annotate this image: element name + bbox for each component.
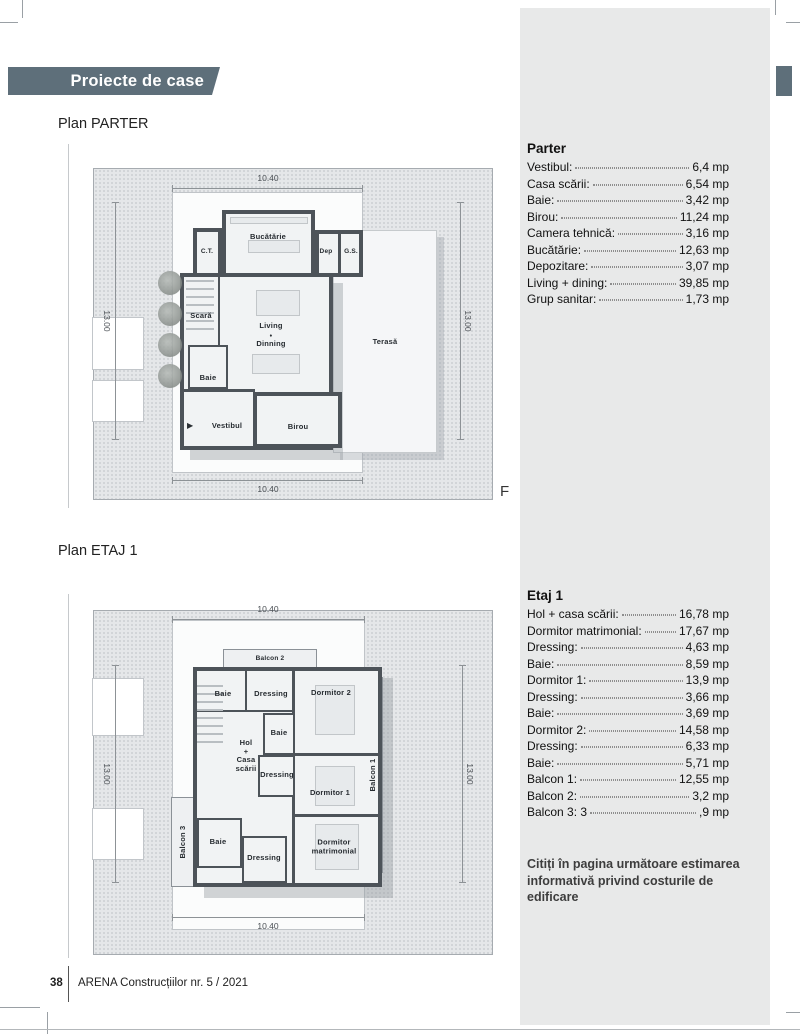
room-label-hol: Hol + Casa scării [236,739,257,773]
room-area: 6,4 mp [692,160,729,174]
room-label-vestibul: Vestibul [212,422,242,431]
room-area: 14,58 mp [679,723,729,737]
entrance-arrow-icon: ▶ [187,421,193,430]
room-label-dormitor1: Dormitor 1 [310,789,350,798]
dot-leader [557,714,682,715]
room-area: 4,63 mp [686,640,729,654]
partition-wall [338,232,341,275]
room-label-dormitor2: Dormitor 2 [311,689,351,698]
list-item: Baie: 5,71 mp [527,756,729,773]
dimension-line-right [462,665,463,883]
partition-wall [184,389,255,392]
dot-leader [599,300,682,301]
drawing-edge [68,144,69,508]
room-label-dressing-mid: Dressing [260,771,294,780]
drawing-edge [68,594,69,958]
crop-mark [786,22,800,23]
room-name: Baie: [527,706,554,720]
crop-mark [47,1012,48,1034]
dot-leader [557,201,682,202]
dimension-line-bottom [172,480,363,481]
room-label-dressing-top: Dressing [254,690,288,699]
room-area: 1,73 mp [686,292,729,306]
room-area: 6,54 mp [686,177,729,191]
list-item: Casa scării: 6,54 mp [527,177,729,194]
list-item: Vestibul: 6,4 mp [527,160,729,177]
dot-leader [575,168,689,169]
room-area: 3,16 mp [686,226,729,240]
list-item: Bucătărie: 12,63 mp [527,243,729,260]
dimension-line-left [115,202,116,440]
room-area: 12,63 mp [679,243,729,257]
list-item: Dormitor matrimonial: 17,67 mp [527,624,729,641]
room-area: 3,42 mp [686,193,729,207]
crop-mark [22,0,23,18]
room-area: 13,9 mp [686,673,729,687]
room-label-dressing-bottom: Dressing [247,854,281,863]
tree-icon [158,364,182,388]
dot-leader [584,250,676,251]
etaj-area-list: Etaj 1 Hol + casa scării: 16,78 mp Dormi… [527,588,729,822]
list-item: Baie: 3,69 mp [527,706,729,723]
room-name: Vestibul: [527,160,572,174]
bottom-rule [0,1029,800,1030]
dot-leader [561,217,676,218]
list-item: Dormitor 1: 13,9 mp [527,673,729,690]
crop-mark [0,1007,40,1008]
room-label-ct: C.T. [201,248,213,257]
room-name: Camera tehnică: [527,226,615,240]
room-label-balcon3: Balcon 3 [179,826,188,859]
list-item: Balcon 2: 3,2 mp [527,789,729,806]
dot-leader [580,780,676,781]
list-item: Dressing: 6,33 mp [527,739,729,756]
list-item: Camera tehnică: 3,16 mp [527,226,729,243]
room-label-balcon1: Balcon 1 [369,759,378,792]
dot-leader [589,681,682,682]
room-name: Grup sanitar: [527,292,596,306]
room-name: Depozitare: [527,259,588,273]
magazine-page: Proiecte de case Plan PARTER Plan ETAJ 1 [0,0,800,1034]
room-area: ,9 mp [699,805,729,819]
driveway [92,380,144,422]
room-area: 6,33 mp [686,739,729,753]
dot-leader [591,267,682,268]
dot-leader [580,796,689,797]
dimension-label: 13.00 [102,763,112,784]
dot-leader [645,631,676,632]
list-items: Hol + casa scării: 16,78 mp Dormitor mat… [527,607,729,822]
partition-wall [295,814,379,817]
list-item: Balcon 3: 3 ,9 mp [527,805,729,822]
room-area: 3,66 mp [686,690,729,704]
room-area: 12,55 mp [679,772,729,786]
list-item: Baie: 3,42 mp [527,193,729,210]
driveway [92,317,144,370]
dimension-line-right [460,202,461,440]
room-label-baie: Baie [200,374,217,383]
list-item: Dressing: 4,63 mp [527,640,729,657]
dining-table [256,290,300,316]
list-items: Vestibul: 6,4 mp Casa scării: 6,54 mp Ba… [527,160,729,309]
room-area: 39,85 mp [679,276,729,290]
list-item: Grup sanitar: 1,73 mp [527,292,729,309]
staircase [186,280,214,335]
plan-etaj-title: Plan ETAJ 1 [58,543,138,559]
dimension-label: 10.40 [257,484,278,494]
room-name: Dressing: [527,640,578,654]
list-item: Balcon 1: 12,55 mp [527,772,729,789]
room-label-dormitor-matrimonial: Dormitor matrimonial [312,839,357,856]
dot-leader [589,730,676,731]
partition-wall [245,671,247,711]
bed [315,766,355,806]
room-label-bucatarie: Bucătărie [250,233,286,242]
room-label-dep: Dep [320,248,333,257]
dimension-line-bottom [172,917,365,918]
room-name: Living + dining: [527,276,607,290]
room-name: Baie: [527,193,554,207]
list-item: Birou: 11,24 mp [527,210,729,227]
floor-plan-etaj: Balcon 2 Baie Dressing Dormitor 2 Hol + … [60,590,515,962]
room-name: Birou: [527,210,558,224]
room-name: Balcon 2: [527,789,577,803]
page-number: 38 [50,977,63,989]
tree-icon [158,271,182,295]
partition-wall [295,753,379,756]
dot-leader [581,747,683,748]
room-area: 8,59 mp [686,657,729,671]
room-name: Dormitor matrimonial: [527,624,642,638]
crop-mark [786,1012,800,1013]
cropped-letter: F [500,483,509,500]
room-area: 3,69 mp [686,706,729,720]
room-label-birou: Birou [288,423,309,432]
footer-divider [68,966,69,1002]
dot-leader [557,664,682,665]
room-name: Baie: [527,657,554,671]
next-page-note: Citiți în pagina următoare estimarea inf… [527,856,755,906]
room-name: Bucătărie: [527,243,581,257]
dimension-label: 10.40 [257,921,278,931]
floor-plan-parter: ▶ Bucătărie C.T. Dep G.S. Scară Living ♦… [60,140,515,512]
list-item: Depozitare: 3,07 mp [527,259,729,276]
room-label-scara: Scară [190,312,211,321]
crop-mark [775,0,776,15]
dimension-label: 13.00 [463,310,473,331]
room-area: 16,78 mp [679,607,729,621]
accent-square [776,66,792,96]
room-name: Casa scării: [527,177,590,191]
list-item: Baie: 8,59 mp [527,657,729,674]
dot-leader [610,283,676,284]
dimension-line-top [172,619,365,620]
dot-leader [557,763,682,764]
room-area: 3,07 mp [686,259,729,273]
plan-parter-title: Plan PARTER [58,116,149,132]
room-area: 11,24 mp [680,210,729,224]
list-heading-parter: Parter [527,141,729,156]
kitchen-counter [230,217,308,224]
driveway [92,808,144,860]
room-name: Dressing: [527,690,578,704]
dimension-line-left [115,665,116,883]
kitchen-island [248,240,300,253]
tree-icon [158,333,182,357]
list-item: Hol + casa scării: 16,78 mp [527,607,729,624]
driveway [92,678,144,736]
room-name: Dressing: [527,739,578,753]
dot-leader [618,234,683,235]
room-label-baie-mid: Baie [271,729,288,738]
room-label-baie-bottom: Baie [210,838,227,847]
section-banner: Proiecte de case [8,67,220,95]
room-label-baie-top: Baie [215,690,232,699]
list-heading-etaj: Etaj 1 [527,588,729,603]
room-label-living: Living ♦ Dinning [256,322,285,349]
room-label-balcon2: Balcon 2 [256,655,285,664]
partition-wall [218,277,220,345]
magazine-title: ARENA Construcțiilor nr. 5 / 2021 [78,977,248,989]
dot-leader [590,813,696,814]
crop-mark [0,22,18,23]
list-item: Dressing: 3,66 mp [527,690,729,707]
dimension-label: 10.40 [257,173,278,183]
room-name: Hol + casa scării: [527,607,619,621]
dimension-label: 10.40 [257,604,278,614]
dot-leader [593,184,683,185]
list-item: Dormitor 2: 14,58 mp [527,723,729,740]
dot-leader [581,648,683,649]
room-area: 17,67 mp [679,624,729,638]
dimension-label: 13.00 [465,763,475,784]
tree-icon [158,302,182,326]
room-name: Balcon 1: [527,772,577,786]
sofa [252,354,300,374]
dimension-label: 13.00 [102,310,112,331]
room-name: Balcon 3: 3 [527,805,587,819]
office-block [253,392,342,448]
room-area: 3,2 mp [692,789,729,803]
room-area: 5,71 mp [686,756,729,770]
dot-leader [581,697,683,698]
parter-area-list: Parter Vestibul: 6,4 mp Casa scării: 6,5… [527,141,729,309]
room-name: Dormitor 1: [527,673,586,687]
room-name: Dormitor 2: [527,723,586,737]
bathroom-box [188,345,228,389]
dimension-line-top [172,188,363,189]
room-label-gs: G.S. [344,248,358,257]
room-label-terasa: Terasă [373,338,398,347]
room-name: Baie: [527,756,554,770]
list-item: Living + dining: 39,85 mp [527,276,729,293]
dot-leader [622,615,676,616]
